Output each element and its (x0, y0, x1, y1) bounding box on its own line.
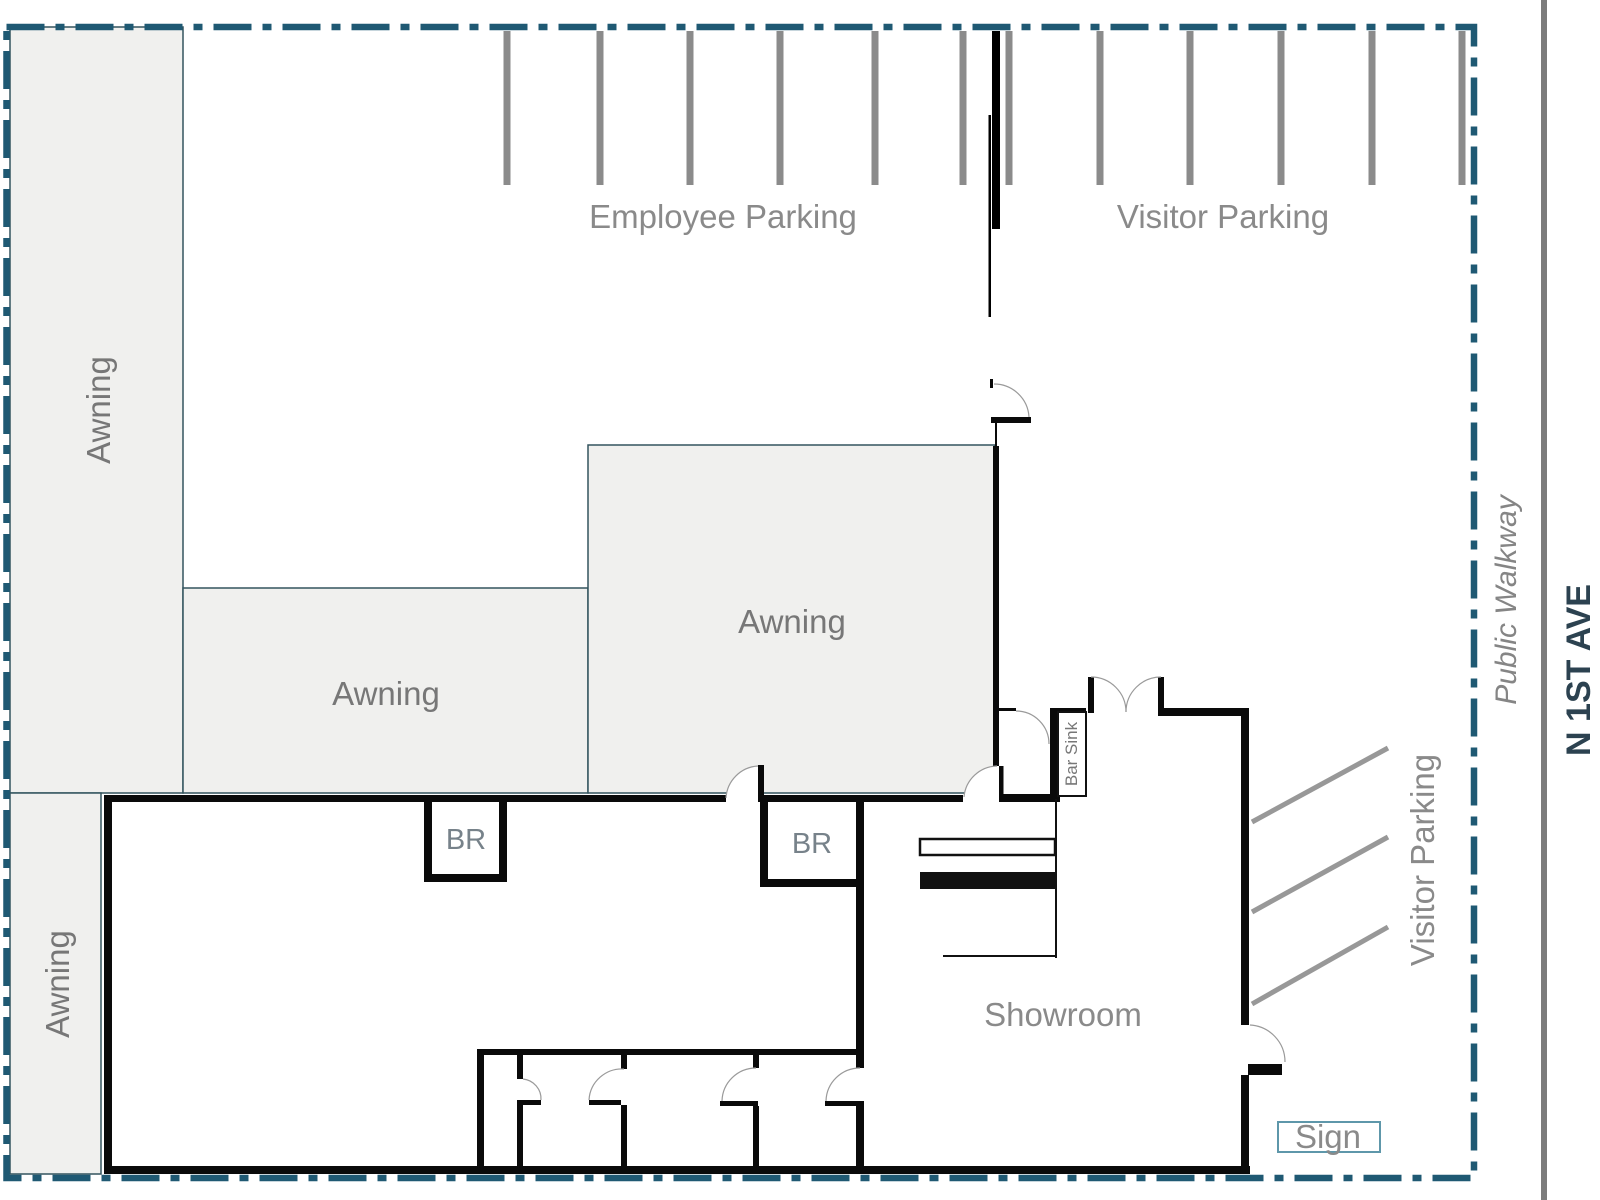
svg-text:Visitor Parking: Visitor Parking (1404, 754, 1441, 966)
svg-text:Showroom: Showroom (984, 996, 1142, 1033)
svg-text:Awning: Awning (738, 603, 846, 640)
svg-text:Public Walkway: Public Walkway (1490, 493, 1523, 705)
svg-text:Sign: Sign (1295, 1118, 1361, 1155)
svg-text:BR: BR (792, 828, 832, 860)
svg-text:Bar Sink: Bar Sink (1062, 721, 1081, 786)
svg-text:Employee Parking: Employee Parking (589, 198, 857, 235)
svg-text:Visitor Parking: Visitor Parking (1117, 198, 1329, 235)
svg-text:N 1ST AVE: N 1ST AVE (1560, 584, 1598, 756)
svg-text:Awning: Awning (39, 930, 76, 1038)
svg-text:Awning: Awning (80, 356, 117, 464)
svg-text:BR: BR (446, 824, 486, 856)
svg-text:Awning: Awning (332, 675, 440, 712)
